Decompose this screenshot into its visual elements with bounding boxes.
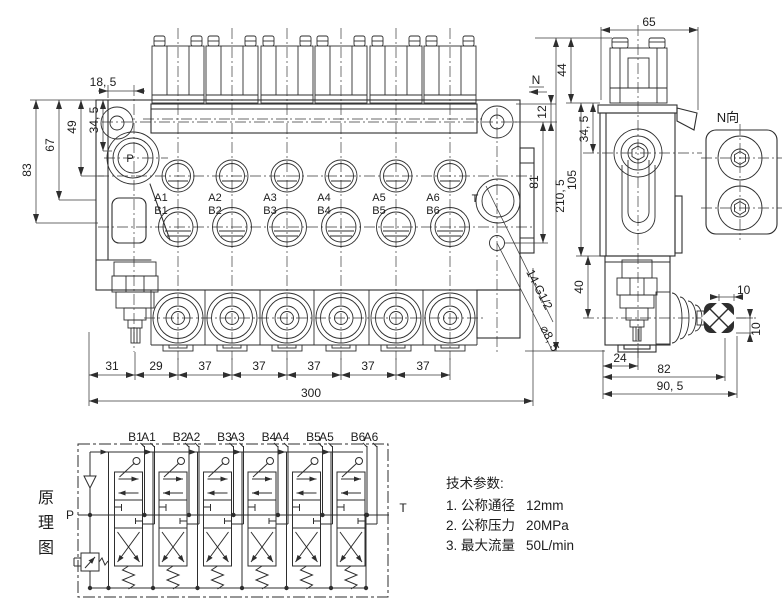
- hydraulic-schematic: 原 理 图 B1 A1 B2 A2 B3 A3 B4 A4 B5 A5 B6 A…: [38, 430, 407, 597]
- schematic-t-label: T: [399, 501, 407, 515]
- dim-67: 67: [43, 138, 57, 152]
- dim-300: 300: [301, 386, 321, 400]
- dim-37-5: 37: [416, 359, 430, 373]
- dim-37-2: 37: [252, 359, 266, 373]
- tech-param-3-value: 50L/min: [526, 538, 574, 553]
- dim-83: 83: [20, 163, 34, 177]
- dim-24: 24: [613, 351, 627, 365]
- tech-params: 技术参数: 1. 公称通径 12mm 2. 公称压力 20MPa 3. 最大流量…: [446, 475, 574, 553]
- dim-82: 82: [657, 362, 671, 376]
- callout-hole-dia: ⌀8, 5: [537, 323, 562, 354]
- dim-65: 65: [642, 15, 656, 29]
- dim-31: 31: [105, 359, 119, 373]
- t-port-boss: [476, 106, 520, 251]
- n-direction-view: N向: [701, 110, 782, 240]
- dim-34-5-side: 34, 5: [577, 115, 591, 142]
- t-port-label: T: [472, 193, 479, 205]
- schematic-title-char-2: 理: [38, 515, 54, 532]
- sch-a1: A1: [141, 430, 156, 444]
- dim-37-4: 37: [361, 359, 375, 373]
- b2-label: B2: [208, 205, 221, 217]
- side-cap: [610, 38, 667, 103]
- dim-44: 44: [555, 63, 569, 77]
- dim-29: 29: [149, 359, 163, 373]
- tech-param-1-value: 12mm: [526, 498, 564, 513]
- valve-technical-drawing: P T A1 A2 A3 A4 A5 A6 B1 B2 B3 B4 B5 B6 …: [0, 0, 783, 611]
- p-port-label: P: [126, 153, 133, 165]
- a2-label: A2: [208, 192, 221, 204]
- schematic-title-char-1: 原: [38, 490, 54, 507]
- a1-label: A1: [154, 192, 167, 204]
- schematic-port-labels: B1 A1 B2 A2 B3 A3 B4 A4 B5 A5 B6 A6: [128, 430, 379, 444]
- dim-12: 12: [535, 105, 549, 119]
- dim-81: 81: [527, 175, 541, 189]
- dim-18-5: 18, 5: [90, 75, 117, 89]
- drawing-canvas: P T A1 A2 A3 A4 A5 A6 B1 B2 B3 B4 B5 B6 …: [0, 0, 783, 611]
- dim-10-h: 10: [737, 283, 751, 297]
- dim-34-5: 34, 5: [87, 106, 101, 133]
- tech-param-2-label: 2. 公称压力: [446, 518, 515, 533]
- schematic-title-char-3: 图: [38, 540, 54, 557]
- tech-params-title: 技术参数:: [446, 475, 504, 491]
- joystick-ball-knob: [701, 301, 737, 335]
- sch-a5: A5: [319, 430, 334, 444]
- p-port-boss: [101, 107, 159, 184]
- a4-label: A4: [317, 192, 330, 204]
- sch-a6: A6: [364, 430, 379, 444]
- schematic-p-label: P: [66, 508, 74, 522]
- valve-body-outline: [96, 100, 534, 338]
- callout-thread: 14-G1/2: [523, 267, 555, 312]
- spool-caps: [152, 36, 476, 103]
- side-dims: 65 44 34, 5 105 40 24 82 90, 5 10 10: [555, 15, 763, 399]
- sch-a2: A2: [186, 430, 201, 444]
- dim-49: 49: [65, 120, 79, 134]
- sch-a4: A4: [275, 430, 290, 444]
- dim-105: 105: [565, 170, 579, 190]
- b1-label: B1: [154, 205, 167, 217]
- tech-param-2-value: 20MPa: [526, 518, 569, 533]
- dim-90-5: 90, 5: [657, 379, 684, 393]
- n-view-title: N向: [717, 110, 739, 125]
- sch-a3: A3: [230, 430, 245, 444]
- dim-10-v: 10: [749, 322, 763, 336]
- schematic-title: 原 理 图: [38, 490, 54, 557]
- b6-label: B6: [426, 205, 439, 217]
- tech-param-1-label: 1. 公称通径: [446, 498, 515, 513]
- lower-sections: [151, 290, 477, 345]
- a5-label: A5: [372, 192, 385, 204]
- front-dims-left: 18, 5 34, 5 49 67 83: [20, 75, 145, 223]
- side-view: 65 44 34, 5 105 40 24 82 90, 5 10 10: [555, 15, 763, 399]
- port-callouts: 14-G1/2 ⌀8, 5: [486, 186, 562, 354]
- relief-valve-side: [617, 260, 657, 341]
- tech-param-3-label: 3. 最大流量: [446, 538, 515, 553]
- n-view-arrow: N: [529, 73, 547, 92]
- dim-37-3: 37: [307, 359, 321, 373]
- dim-40: 40: [572, 280, 586, 294]
- front-view: P T A1 A2 A3 A4 A5 A6 B1 B2 B3 B4 B5 B6 …: [20, 28, 612, 406]
- dim-37-1: 37: [198, 359, 212, 373]
- b4-label: B4: [317, 205, 330, 217]
- a3-label: A3: [263, 192, 276, 204]
- schematic-sections: [100, 443, 378, 590]
- b3-label: B3: [263, 205, 276, 217]
- n-arrow-label: N: [532, 73, 541, 87]
- b5-label: B5: [372, 205, 385, 217]
- front-dims-right: 12 81 210, 5: [505, 38, 612, 351]
- a6-label: A6: [426, 192, 439, 204]
